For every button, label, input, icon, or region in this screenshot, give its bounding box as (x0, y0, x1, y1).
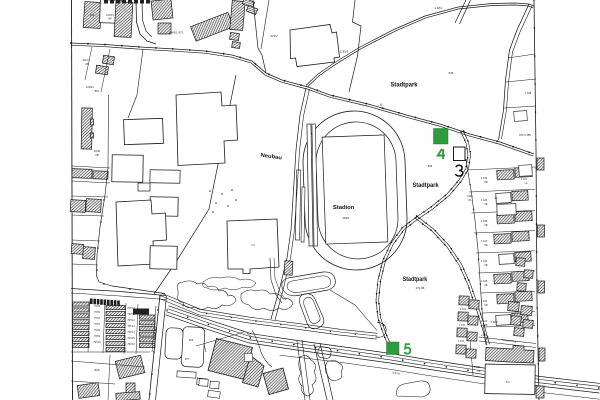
svg-text:1 125: 1 125 (481, 280, 488, 283)
svg-text:929: 929 (189, 338, 194, 342)
svg-text:PA: PA (468, 199, 471, 202)
svg-text:797/6: 797/6 (94, 317, 101, 320)
svg-text:VfF: VfF (484, 182, 488, 184)
svg-text:999: 999 (90, 13, 95, 17)
svg-text:797/15: 797/15 (127, 337, 135, 340)
svg-text:1 129: 1 129 (481, 199, 488, 202)
svg-text:1 128: 1 128 (481, 220, 488, 223)
svg-text:7 186: 7 186 (525, 91, 532, 95)
svg-text:846: 846 (449, 71, 454, 75)
svg-text:1043/1 971: 1043/1 971 (168, 31, 183, 35)
svg-text:7 223: 7 223 (491, 320, 498, 324)
svg-text:Tm: Tm (506, 380, 511, 384)
svg-text:1183/3: 1183/3 (340, 50, 349, 54)
svg-text:1 126: 1 126 (481, 260, 488, 263)
svg-text:797/11: 797/11 (127, 313, 135, 316)
svg-text:1 124: 1 124 (481, 300, 488, 303)
svg-text:876 /7185: 876 /7185 (519, 133, 531, 137)
svg-text:279 /98: 279 /98 (416, 286, 425, 290)
svg-text:1 101: 1 101 (460, 309, 466, 311)
svg-text:mf: mf (252, 243, 255, 247)
svg-text:1 103: 1 103 (458, 341, 464, 343)
svg-text:VfF: VfF (484, 204, 488, 206)
svg-text:797/16: 797/16 (127, 343, 135, 346)
svg-text:1 102: 1 102 (459, 325, 465, 327)
svg-text:VfF: VfF (484, 265, 488, 267)
svg-text:VfF: VfF (484, 339, 488, 341)
svg-text:797/5: 797/5 (94, 311, 101, 314)
svg-text:Stadtpark: Stadtpark (391, 82, 418, 89)
svg-text:846: 846 (428, 164, 433, 168)
svg-text:1 121: 1 121 (521, 178, 528, 181)
svg-text:VfF: VfF (484, 285, 488, 287)
svg-text:1149: 1149 (467, 194, 473, 198)
svg-text:1046: 1046 (94, 149, 101, 153)
svg-text:1049/1: 1049/1 (86, 86, 94, 89)
svg-text:1 130: 1 130 (481, 177, 488, 180)
svg-text:797/9: 797/9 (94, 335, 101, 338)
svg-text:WF: WF (85, 64, 89, 66)
svg-text:WF: WF (108, 18, 112, 21)
svg-text:Stadtpark: Stadtpark (413, 182, 440, 189)
svg-text:Stadtpark: Stadtpark (403, 276, 428, 283)
svg-text:VfF: VfF (484, 325, 488, 327)
svg-text:VfF: VfF (484, 245, 488, 247)
svg-text:1 122: 1 122 (481, 334, 488, 337)
svg-text:- 6: - 6 (378, 103, 382, 107)
svg-text:VfF: VfF (484, 305, 488, 307)
svg-text:1 123: 1 123 (481, 320, 488, 323)
svg-text:797/8: 797/8 (94, 329, 101, 332)
svg-text:VfF: VfF (95, 153, 99, 157)
svg-text:829: 829 (94, 368, 99, 372)
svg-text:977: 977 (185, 357, 190, 361)
svg-text:1 127: 1 127 (481, 240, 488, 243)
svg-text:797/4: 797/4 (94, 305, 101, 308)
svg-text:Stadion: Stadion (333, 205, 355, 211)
svg-text:797/14: 797/14 (127, 331, 135, 334)
svg-text:797/7: 797/7 (94, 323, 101, 326)
svg-text:1 184: 1 184 (434, 6, 442, 10)
svg-text:VfF: VfF (484, 225, 488, 227)
svg-text:797/12: 797/12 (127, 319, 135, 322)
svg-text:797/10: 797/10 (127, 307, 135, 310)
svg-text:BPL: BPL (95, 90, 100, 93)
svg-text:797/13: 797/13 (127, 325, 135, 328)
svg-text:1180: 1180 (342, 216, 349, 220)
svg-text:976/2: 976/2 (271, 34, 278, 38)
svg-text:797/10: 797/10 (93, 341, 101, 344)
svg-text:1 105: 1 105 (474, 366, 481, 369)
